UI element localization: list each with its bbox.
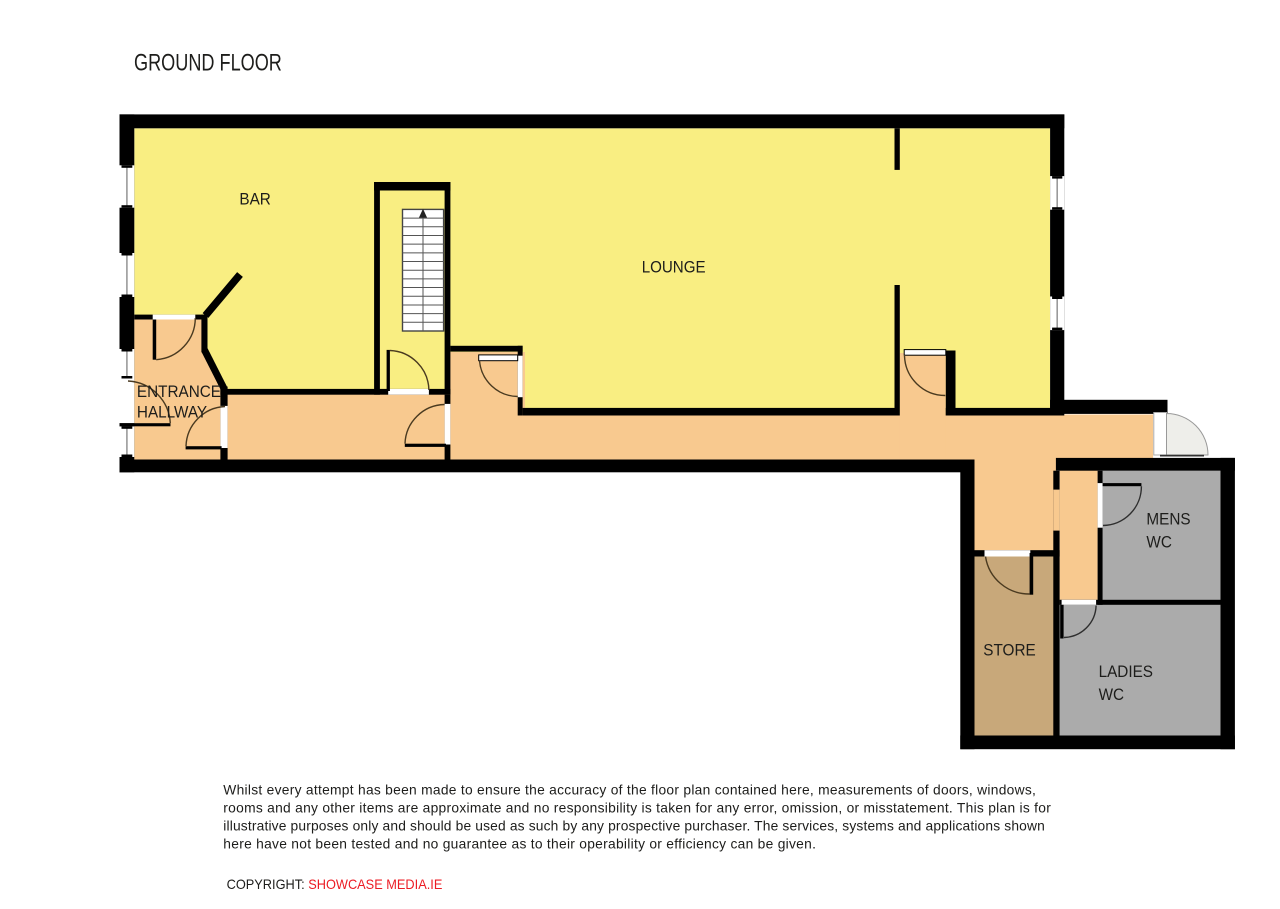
svg-text:BAR: BAR <box>239 190 270 209</box>
svg-text:GROUND FLOOR: GROUND FLOOR <box>134 49 282 76</box>
svg-text:here have not been tested and: here have not been tested and no guarant… <box>223 837 816 852</box>
svg-text:WC: WC <box>1146 533 1172 552</box>
svg-text:STORE: STORE <box>983 641 1036 660</box>
svg-text:LOUNGE: LOUNGE <box>642 258 706 277</box>
svg-text:MENS: MENS <box>1146 510 1190 529</box>
svg-text:ENTRANCE: ENTRANCE <box>137 382 221 401</box>
svg-text:COPYRIGHT: SHOWCASE MEDIA.IE: COPYRIGHT: SHOWCASE MEDIA.IE <box>227 876 443 892</box>
svg-text:LADIES: LADIES <box>1099 662 1154 681</box>
svg-text:HALLWAY: HALLWAY <box>137 403 207 422</box>
svg-text:rooms and any other items are: rooms and any other items are approximat… <box>223 801 1051 816</box>
svg-text:Whilst every attempt has been: Whilst every attempt has been made to en… <box>223 783 1036 798</box>
svg-text:illustrative purposes only and: illustrative purposes only and should be… <box>223 819 1045 834</box>
svg-text:WC: WC <box>1099 685 1125 704</box>
